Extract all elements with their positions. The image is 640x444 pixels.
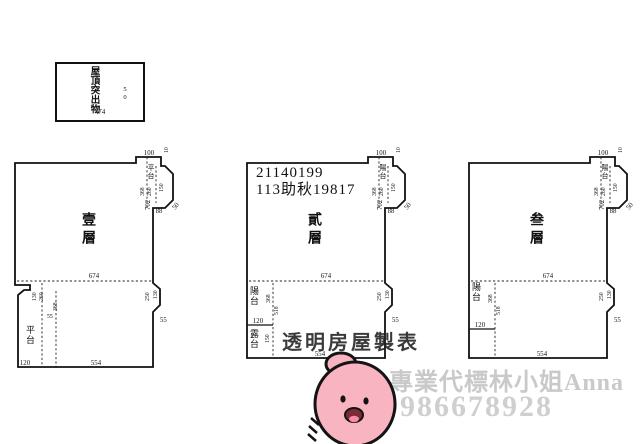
sticker-eye-left <box>340 395 345 402</box>
dim-right-slant: 50 <box>171 201 181 211</box>
plan1-floor-label: 壹層 <box>80 212 94 248</box>
dim-lr-a: 250 <box>599 292 605 301</box>
plan2-lower-area-label: 陽台 <box>249 286 258 306</box>
dim-lr-a: 250 <box>377 292 383 301</box>
scanned-floorplan-page: 屋頂突出物 50 474 100 10 368 260 150 702 88 5… <box>0 0 640 444</box>
plan3-lower-area-label: 陽台 <box>471 282 480 302</box>
dim-right-wall: 702 <box>599 199 606 210</box>
sticker-eye-right <box>363 397 368 404</box>
dim-lr-slant: 55 <box>614 317 621 324</box>
agent-watermark-phone: 0986678928 <box>383 390 553 424</box>
dim-balcony-c: 150 <box>391 183 397 192</box>
dim-right-slant: 50 <box>625 201 635 211</box>
dim-bottom-left-seg: 120 <box>253 318 264 325</box>
case-number-block: 21140199 113助秋19817 <box>256 165 355 198</box>
dim-lr-slant: 55 <box>160 317 167 324</box>
dim-right-step: 88 <box>156 208 163 215</box>
maker-overlay-text: 透明房屋製表 <box>282 326 420 355</box>
dim-balcony-b: 260 <box>601 187 607 196</box>
dim-lr-b: 130 <box>153 290 159 299</box>
floor-plan-3: 100 10 368 260 150 702 88 50 674 368 518… <box>462 143 640 383</box>
sticker-palm <box>315 362 395 444</box>
dim-top-width: 100 <box>376 150 387 157</box>
pink-hand-sticker <box>303 352 403 444</box>
plan2-upper-area-label: 陽台 <box>379 164 386 180</box>
dim-right-step: 88 <box>388 208 395 215</box>
plan2-floor-label: 貳層 <box>306 212 320 248</box>
sticker-cuff-line <box>309 426 317 433</box>
dim-terrace: 150 <box>265 334 271 343</box>
dim-balcony-c: 150 <box>613 183 619 192</box>
dim-balcony-b: 260 <box>379 187 385 196</box>
dim-ll-a: 130 <box>32 292 38 301</box>
dim-top-step: 10 <box>618 147 624 153</box>
dim-ll-small: 55 <box>47 314 53 320</box>
dim-balcony-a: 368 <box>594 187 600 196</box>
dim-right-wall: 702 <box>145 199 152 210</box>
dim-ll-b: 260 <box>39 292 45 301</box>
dim-right-step: 88 <box>610 208 617 215</box>
sticker-cuff-line <box>308 434 316 441</box>
roof-structure-label: 屋頂突出物 <box>88 66 98 114</box>
dim-bottom-left-seg: 120 <box>20 360 31 367</box>
roof-width-dimension: 474 <box>80 108 120 116</box>
plan3-outline <box>469 157 627 358</box>
plan1-upper-area-label: 平台 <box>147 164 154 180</box>
dim-lr-a: 250 <box>145 292 151 301</box>
dim-bottom-width: 554 <box>537 351 548 358</box>
case-number-line2: 113助秋19817 <box>256 182 355 199</box>
dim-balcony-b: 260 <box>147 187 153 196</box>
dim-top-step: 10 <box>396 147 402 153</box>
floor-plan-1: 100 10 368 260 150 702 88 50 674 130 260… <box>8 143 188 383</box>
dim-top-width: 100 <box>144 150 155 157</box>
dim-ll-vert2: 518 <box>274 306 280 315</box>
dim-mid-width: 674 <box>321 273 332 280</box>
dim-top-width: 100 <box>598 150 609 157</box>
dim-ll-vert1: 368 <box>488 294 494 303</box>
plan2-terrace-label: 露台 <box>249 329 258 349</box>
dim-lr-b: 130 <box>385 290 391 299</box>
case-number-line1: 21140199 <box>256 165 355 182</box>
roof-side-dimension: 50 <box>121 86 128 102</box>
dim-right-slant: 50 <box>403 201 413 211</box>
dim-balcony-a: 368 <box>140 187 146 196</box>
plan3-floor-label: 叁層 <box>528 212 542 248</box>
dim-balcony-c: 150 <box>159 183 165 192</box>
dim-bottom-left-seg: 120 <box>475 322 486 329</box>
dim-ll-vert: 368 <box>53 302 59 311</box>
dim-lr-slant: 55 <box>392 317 399 324</box>
dim-ll-vert1: 368 <box>266 294 272 303</box>
dim-mid-width: 674 <box>543 273 554 280</box>
dim-lr-b: 130 <box>607 290 613 299</box>
dim-top-step: 10 <box>164 147 170 153</box>
dim-ll-vert2: 518 <box>496 306 502 315</box>
plan3-upper-area-label: 陽台 <box>601 164 608 180</box>
dim-bottom-width: 554 <box>91 360 102 367</box>
dim-right-wall: 702 <box>377 199 384 210</box>
sticker-tongue <box>349 416 359 422</box>
dim-mid-width: 674 <box>89 273 100 280</box>
dim-balcony-a: 368 <box>372 187 378 196</box>
plan1-lower-area-label: 平台 <box>25 325 34 345</box>
